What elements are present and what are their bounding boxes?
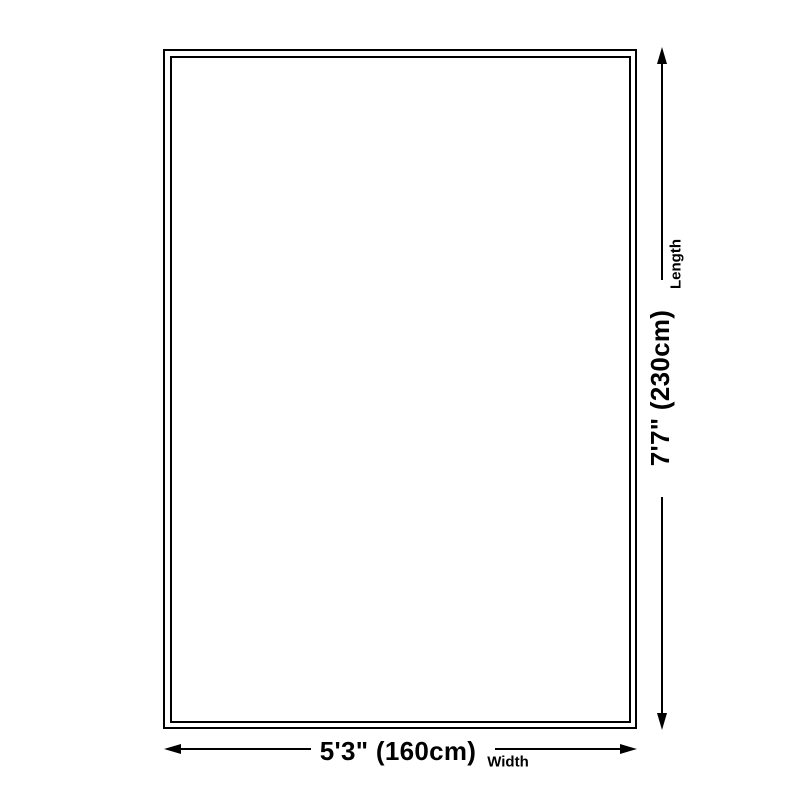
- width-dimension-line-right: [495, 748, 621, 751]
- length-axis-label: Length: [669, 239, 684, 289]
- length-value-label: 7'7" (230cm): [647, 310, 673, 467]
- rug-outline: [163, 49, 637, 729]
- length-dimension-line-top: [661, 62, 664, 280]
- width-value-label: 5'3" (160cm): [320, 738, 477, 764]
- rug-size-diagram: Length 7'7" (230cm) 5'3" (160cm) Width: [0, 0, 800, 800]
- width-axis-label: Width: [487, 755, 529, 770]
- length-arrow-down-icon: [657, 713, 667, 730]
- width-dimension-line-left: [179, 748, 311, 751]
- rug-outline-inner-border: [170, 56, 631, 723]
- length-dimension-line-bottom: [661, 497, 664, 714]
- width-arrow-right-icon: [620, 744, 637, 754]
